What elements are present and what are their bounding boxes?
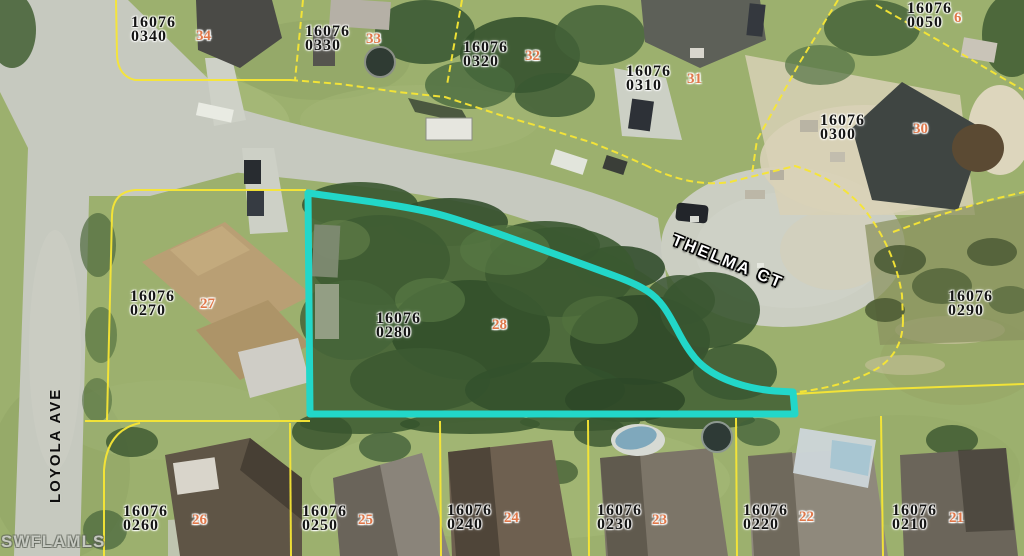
aerial-photo [0,0,1024,556]
round-pool [702,422,732,452]
pond-lot30 [952,124,1004,172]
trampoline [365,47,395,77]
trailer [426,118,472,140]
mls-aerial-map: THELMA CT LOYOLA AVE SWFLAMLS 1607603403… [0,0,1024,556]
